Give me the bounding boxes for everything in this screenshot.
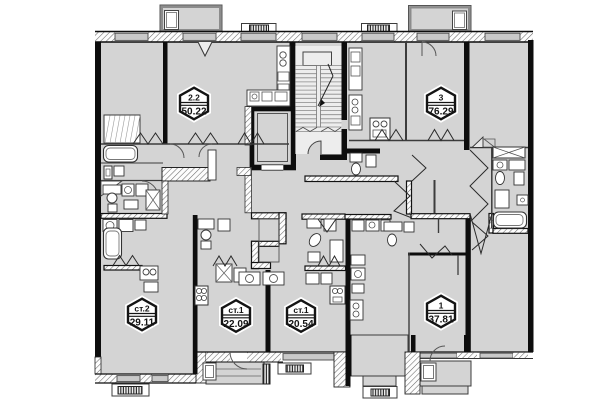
svg-text:ст.1: ст.1 — [293, 305, 309, 315]
svg-text:22.09: 22.09 — [223, 319, 248, 330]
svg-text:1: 1 — [439, 301, 444, 311]
svg-text:20.54: 20.54 — [288, 319, 313, 330]
svg-text:ст.1: ст.1 — [228, 305, 244, 315]
svg-text:2.2: 2.2 — [188, 93, 200, 103]
svg-text:3: 3 — [439, 93, 444, 103]
svg-text:37.81: 37.81 — [428, 315, 453, 326]
svg-text:ст.2: ст.2 — [134, 304, 150, 314]
svg-text:29.11: 29.11 — [130, 318, 155, 329]
svg-text:50.22: 50.22 — [181, 107, 206, 118]
svg-text:76.29: 76.29 — [428, 107, 453, 118]
